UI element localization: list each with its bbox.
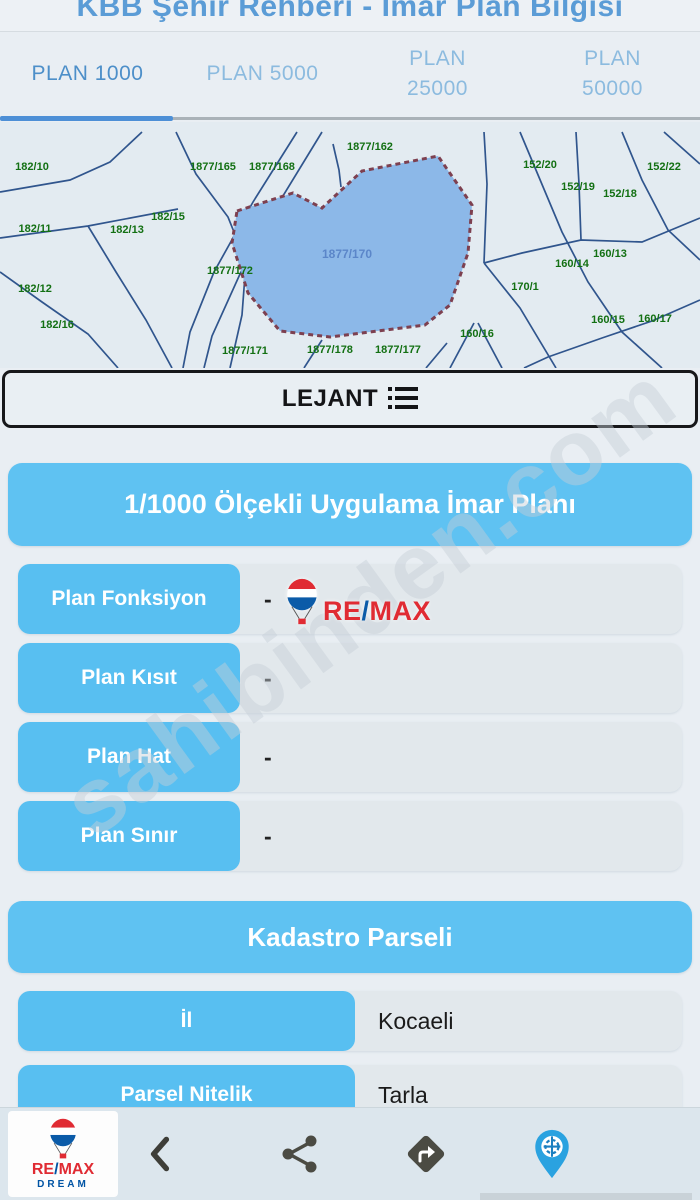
row-value: - — [264, 722, 682, 792]
tab-label: PLAN 1000 — [32, 62, 144, 85]
parcel-number-label: 1877/178 — [307, 344, 353, 356]
parcel-boundary-line — [426, 343, 447, 368]
list-icon — [388, 386, 418, 412]
parcel-number-label: 182/16 — [40, 319, 74, 331]
directions-button[interactable] — [404, 1132, 448, 1176]
row-value: - — [264, 564, 682, 634]
imar-plan-app: KBB Şehir Rehberi - İmar Plan Bilgisi PL… — [0, 0, 700, 1200]
page-title: KBB Şehir Rehberi - İmar Plan Bilgisi — [0, 0, 700, 30]
tab-label: PLAN 5000 — [207, 62, 319, 85]
directions-diamond-icon — [404, 1132, 448, 1176]
row-label: İl — [18, 991, 355, 1051]
parcel-number-label: 182/10 — [15, 161, 49, 173]
parcel-number-label: 160/16 — [460, 328, 494, 340]
lejant-label: LEJANT — [282, 385, 378, 413]
section-title-text: 1/1000 Ölçekli Uygulama İmar Planı — [124, 489, 576, 520]
parcel-boundary-line — [484, 218, 700, 263]
parcel-number-label: 182/12 — [18, 283, 52, 295]
row-value: Kocaeli — [378, 991, 682, 1051]
footer-toolbar: RE/MAX DREAM — [0, 1107, 700, 1200]
parcel-boundary-line — [484, 263, 556, 368]
parcel-number-label: 182/11 — [18, 223, 51, 235]
section-title-imar-plani: 1/1000 Ölçekli Uygulama İmar Planı — [8, 463, 692, 546]
row-value: - — [264, 801, 682, 871]
selected-parcel-label: 1877/170 — [322, 247, 372, 261]
active-tab-indicator — [0, 116, 173, 121]
parcel-number-label: 1877/168 — [249, 161, 295, 173]
share-button[interactable] — [278, 1132, 322, 1176]
remax-balloon-icon — [46, 1118, 80, 1160]
table-row: Plan Kısıt- — [18, 643, 682, 713]
parcel-boundary-line — [333, 144, 341, 187]
parcel-boundary-line — [88, 226, 172, 368]
remax-dream-logo: RE/MAX DREAM — [8, 1111, 118, 1197]
parcel-number-label: 182/13 — [110, 224, 144, 236]
row-label: Plan Sınır — [18, 801, 240, 871]
tab-label: PLAN 50000 — [571, 44, 655, 104]
kbb-location-pin-icon — [531, 1128, 573, 1180]
tab-track-line — [173, 117, 700, 120]
table-row: Plan Fonksiyon- — [18, 564, 682, 634]
tab-plan-50000[interactable]: PLAN 50000 — [525, 44, 700, 104]
tab-plan-1000[interactable]: PLAN 1000 — [0, 62, 175, 86]
parcel-number-label: 160/15 — [591, 314, 625, 326]
parcel-boundary-line — [664, 132, 700, 164]
plan-info-rows: Plan Fonksiyon-Plan Kısıt-Plan Hat-Plan … — [18, 564, 682, 871]
back-button[interactable] — [138, 1132, 182, 1176]
parcel-number-label: 1877/177 — [375, 344, 421, 356]
tab-label: PLAN 25000 — [396, 44, 480, 104]
parcel-number-label: 160/14 — [555, 258, 590, 270]
row-label: Plan Hat — [18, 722, 240, 792]
parcel-number-label: 1877/165 — [190, 161, 236, 173]
cadastral-map[interactable]: 182/10182/11182/13182/151877/1651877/168… — [0, 122, 700, 368]
bottom-edge-strip — [480, 1193, 692, 1200]
kbb-location-button[interactable] — [530, 1132, 574, 1176]
table-row: Plan Sınır- — [18, 801, 682, 871]
share-icon — [280, 1134, 320, 1174]
tab-plan-5000[interactable]: PLAN 5000 — [175, 62, 350, 86]
parcel-boundary-line — [484, 132, 487, 263]
parcel-number-label: 1877/162 — [347, 141, 393, 153]
plan-tab-bar: PLAN 1000PLAN 5000PLAN 25000PLAN 50000 — [0, 32, 700, 116]
parcel-number-label: 152/22 — [647, 161, 681, 173]
chevron-left-icon — [143, 1134, 177, 1174]
row-value: - — [264, 643, 682, 713]
remax-wordmark: RE/MAX — [32, 1161, 94, 1179]
parcel-number-label: 1877/172 — [207, 265, 253, 277]
parcel-number-label: 182/15 — [151, 211, 185, 223]
tab-plan-25000[interactable]: PLAN 25000 — [350, 44, 525, 104]
parcel-number-label: 170/1 — [511, 281, 539, 293]
parcel-number-label: 160/17 — [638, 313, 672, 325]
remax-dream-label: DREAM — [37, 1179, 89, 1190]
parcel-number-label: 160/13 — [593, 248, 627, 260]
row-label: Plan Kısıt — [18, 643, 240, 713]
section-title-kadastro: Kadastro Parseli — [8, 901, 692, 973]
parcel-map-svg: 182/10182/11182/13182/151877/1651877/168… — [0, 122, 700, 368]
parcel-number-label: 152/19 — [561, 181, 595, 193]
parcel-number-label: 1877/171 — [222, 345, 268, 357]
row-label: Plan Fonksiyon — [18, 564, 240, 634]
table-row: İlKocaeli — [18, 991, 682, 1051]
section-title-text: Kadastro Parseli — [247, 922, 452, 953]
lejant-button[interactable]: LEJANT — [2, 370, 698, 428]
kadastro-rows: İlKocaeliParsel NitelikTarla — [18, 991, 682, 1125]
parcel-number-label: 152/20 — [523, 159, 557, 171]
table-row: Plan Hat- — [18, 722, 682, 792]
parcel-number-label: 152/18 — [603, 188, 637, 200]
titlebar: KBB Şehir Rehberi - İmar Plan Bilgisi — [0, 0, 700, 32]
